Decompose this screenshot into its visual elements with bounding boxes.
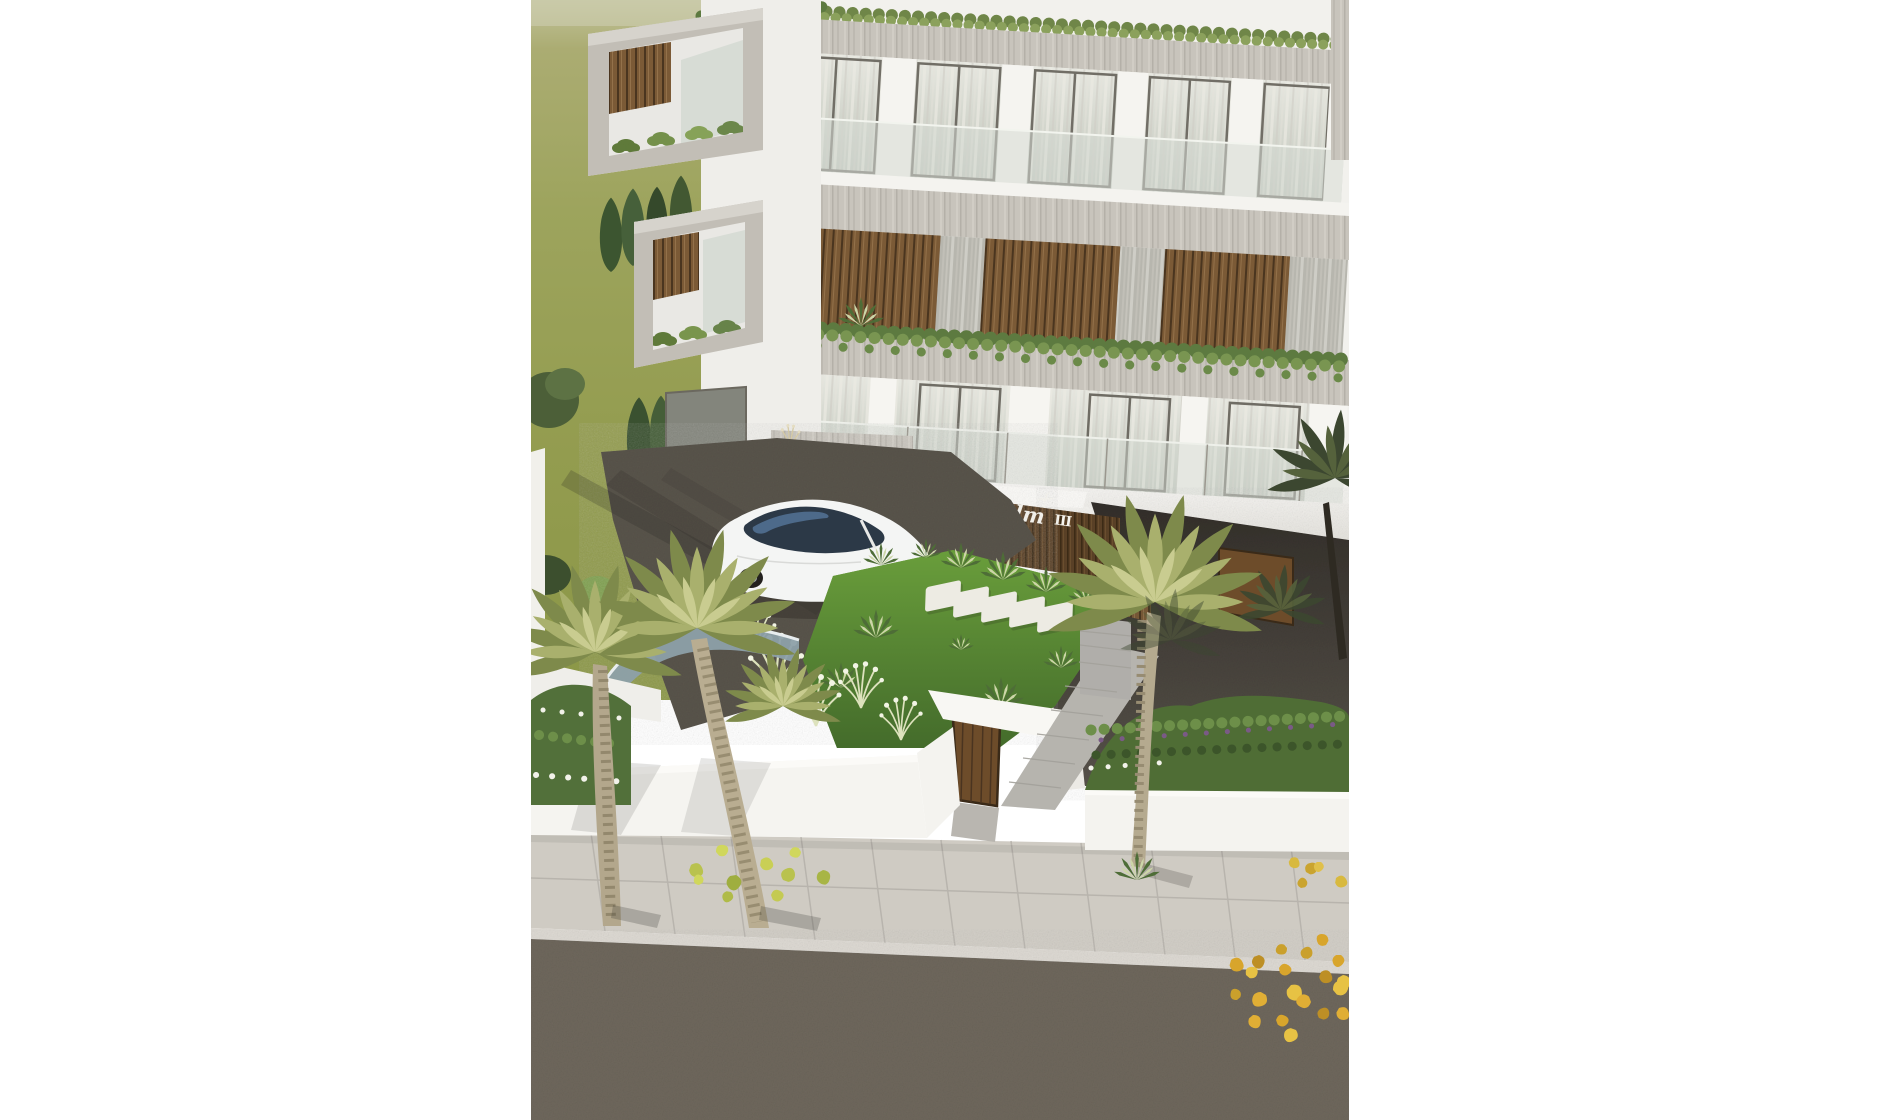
wood-slat-screen [980,238,1121,346]
wood-slat-panel [609,42,671,114]
glass-balustrade [703,230,745,334]
concrete-pier [1331,0,1349,160]
balcony-frame-1 [588,8,763,176]
left-garden-shrubs [531,685,631,805]
ground-window [666,387,746,449]
balcony-frame-2 [634,200,763,368]
wood-slat-screen [805,228,941,336]
perimeter-wall-right [1085,788,1349,852]
wood-slat-screen [1159,249,1290,356]
sign-numeral-text: III [1053,512,1072,530]
page-background: Palm III [0,0,1880,1120]
wood-slat-panel [653,232,699,300]
gate-threshold [951,802,999,842]
gate-door [953,719,1000,806]
architectural-render: Palm III [531,0,1349,1120]
